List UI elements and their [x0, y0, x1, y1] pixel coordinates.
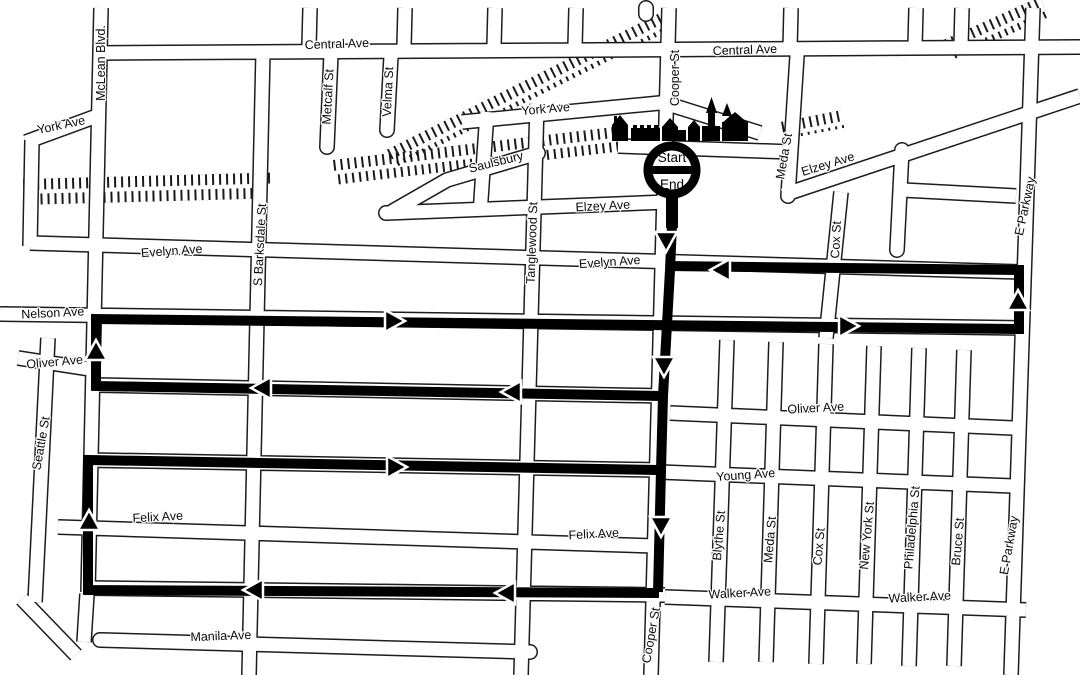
street-label-velma-st: Velma St [380, 66, 397, 117]
street-label-mclean-blvd-: McLean Blvd. [94, 25, 108, 101]
city-route-map: Start End McLean Blvd.Central AveMetcalf… [0, 0, 1080, 675]
street-label-s-barksdale-st: S Barksdale St [251, 203, 269, 287]
street-label-cooper-st: Cooper St [668, 49, 682, 106]
route-map-canvas: Start End McLean Blvd.Central AveMetcalf… [0, 0, 1080, 675]
start-end-circle-marker: Start End [648, 146, 696, 228]
street-label-evelyn-ave: Evelyn Ave [140, 242, 202, 260]
street-label-felix-ave: Felix Ave [568, 526, 619, 543]
street-label-felix-ave: Felix Ave [132, 509, 183, 526]
street-label-metcalf-st: Metcalf St [320, 68, 337, 125]
street-label-central-ave: Central Ave [304, 36, 369, 52]
street-label-tanglewood-st: Tanglewood St [524, 201, 541, 284]
street-label-central-ave: Central Ave [712, 42, 777, 58]
street-label-oliver-ave: Oliver Ave [787, 400, 844, 417]
street-label-cox-st: Cox St [828, 220, 844, 259]
street-label-manila-ave: Manila Ave [190, 628, 251, 644]
start-label: Start [658, 150, 687, 165]
end-label: End [660, 177, 684, 192]
street-label-elzey-ave: Elzey Ave [575, 198, 630, 215]
